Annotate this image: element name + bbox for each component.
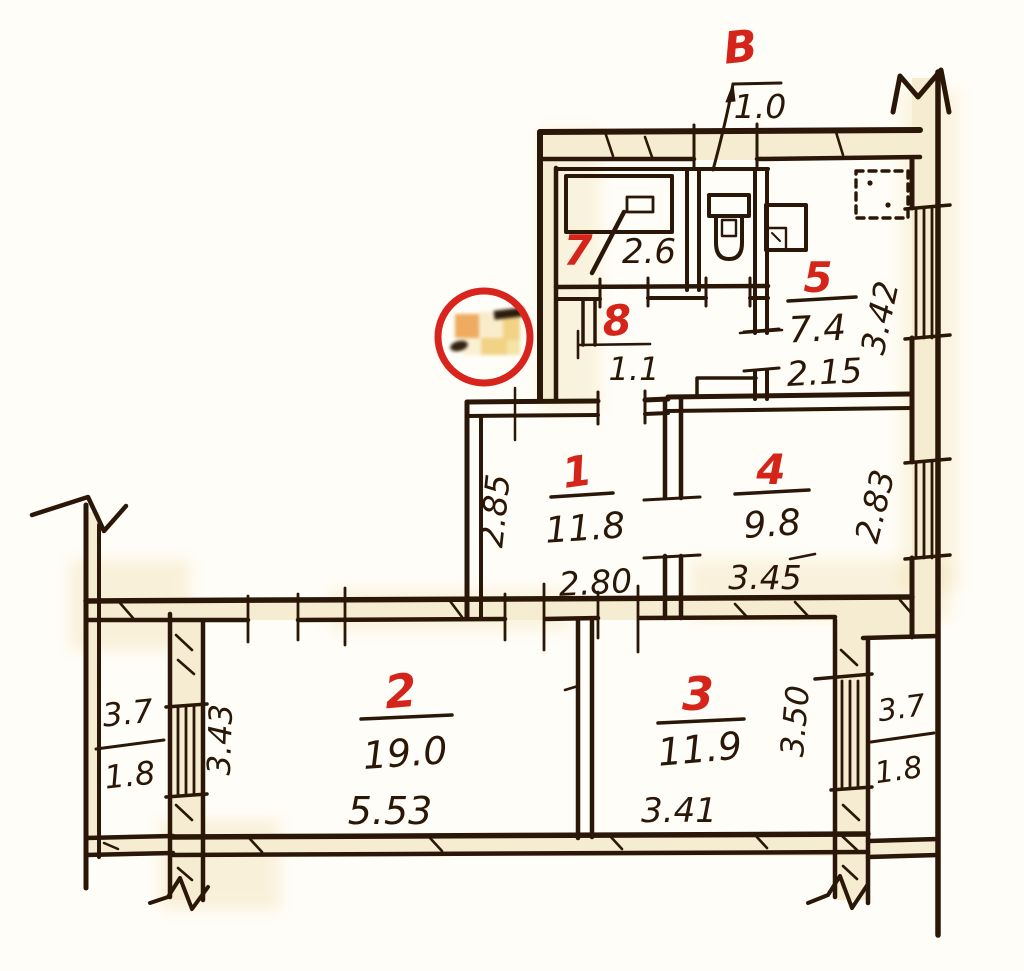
balcony-right-bar bbox=[871, 733, 934, 742]
room-4-area: 9.8 bbox=[742, 502, 802, 547]
floor-plan-svg: В 1.0 7 2.6 8 1.1 5 7.4 2.15 3.42 1 11.8… bbox=[0, 0, 1024, 971]
room-7-number: 7 bbox=[563, 226, 593, 275]
stamp-blurred-content bbox=[449, 307, 524, 355]
fixtures bbox=[566, 171, 908, 259]
entrance-width-dim: 1.0 bbox=[734, 87, 786, 126]
room-1-width-dim: 2.80 bbox=[558, 561, 633, 604]
room-5-bar bbox=[788, 297, 856, 301]
room-5-width-dim: 2.15 bbox=[786, 351, 864, 395]
sink-icon bbox=[766, 205, 806, 250]
balcony-right-width: 3.7 bbox=[876, 688, 928, 729]
balcony-left-width: 3.7 bbox=[101, 691, 156, 734]
balcony-right-length-dim: 3.50 bbox=[773, 684, 817, 758]
room-1-bar bbox=[551, 493, 613, 497]
room-5-number: 5 bbox=[803, 253, 832, 302]
stamp bbox=[438, 291, 530, 383]
room-3-number: 3 bbox=[682, 667, 714, 721]
balcony-right-area: 1.8 bbox=[873, 750, 925, 791]
room-1-number: 1 bbox=[559, 445, 595, 498]
room-8-number: 8 bbox=[601, 295, 634, 346]
floor-plan-sheet: В 1.0 7 2.6 8 1.1 5 7.4 2.15 3.42 1 11.8… bbox=[0, 0, 1024, 971]
balcony-left-area: 1.8 bbox=[103, 754, 158, 797]
balcony-left-bar bbox=[96, 740, 164, 749]
balcony-left-length-dim: 3.43 bbox=[200, 703, 240, 776]
room-2-bar bbox=[361, 715, 452, 719]
room-7-area: 2.6 bbox=[622, 232, 676, 272]
room-4-number: 4 bbox=[755, 445, 785, 494]
room-4-depth-dim: 2.83 bbox=[847, 466, 903, 547]
room-1-depth-dim: 2.85 bbox=[471, 472, 517, 549]
room-5-area: 7.4 bbox=[788, 308, 847, 352]
room-2-number: 2 bbox=[382, 663, 419, 720]
room-3-width-dim: 3.41 bbox=[641, 791, 717, 831]
room-2-width-dim: 5.53 bbox=[348, 789, 433, 833]
room-4-bar bbox=[735, 490, 809, 494]
room-5-depth-dim: 3.42 bbox=[853, 278, 906, 358]
room-1-area: 11.8 bbox=[544, 505, 627, 551]
room-8-area: 1.1 bbox=[609, 350, 660, 388]
toilet-icon bbox=[709, 195, 749, 259]
entrance-label: В bbox=[721, 20, 760, 74]
room-4-width-dim: 3.45 bbox=[728, 558, 801, 597]
room-3-bar bbox=[658, 719, 744, 723]
room-2-area: 19.0 bbox=[361, 728, 448, 778]
room-3-area: 11.9 bbox=[656, 723, 744, 774]
break-left bbox=[32, 497, 126, 531]
